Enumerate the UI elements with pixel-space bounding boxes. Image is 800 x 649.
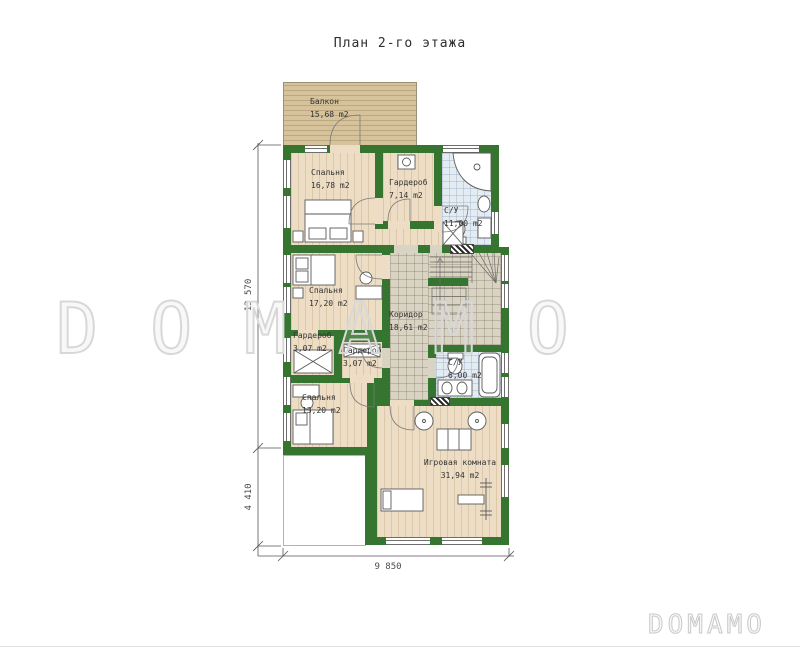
room-label-bedroom1: Спальня16,78 m2	[311, 166, 350, 192]
room-bath1-floor	[442, 153, 491, 245]
window	[283, 338, 291, 362]
bottom-divider	[0, 646, 800, 647]
room-label-wardrobe2: Гардероб3,07 m2	[293, 329, 332, 355]
room-label-corridor: Коридор18,61 m2	[389, 308, 428, 334]
window	[501, 255, 509, 281]
dimension-left-upper: 13 570	[244, 279, 254, 312]
dimension-left-lower: 4 410	[244, 483, 254, 510]
shaft-hatch-2	[430, 397, 450, 406]
page-title: План 2-го этажа	[0, 36, 800, 51]
door-opening-bedroom3	[350, 375, 374, 383]
room-label-bedroom2: Спальня17,20 m2	[309, 284, 348, 310]
opening-corridor-hall	[394, 245, 418, 253]
door-opening-bedroom1	[375, 198, 383, 224]
window	[501, 424, 509, 448]
room-label-wardrobe1: Гардероб7,14 m2	[389, 176, 428, 202]
room-label-balcony: Балкон15,68 m2	[310, 95, 349, 121]
door-opening-bath1	[434, 206, 442, 232]
stair-stub-wall	[428, 278, 468, 286]
floor-plan-canvas: План 2-го этажа	[0, 0, 800, 649]
window	[386, 537, 430, 545]
window	[283, 413, 291, 441]
window	[442, 537, 482, 545]
door-opening-bedroom2	[382, 255, 390, 279]
shaft-hatch-1	[450, 244, 474, 254]
door-opening-bath2	[428, 358, 436, 378]
window	[283, 196, 291, 228]
window	[491, 212, 499, 234]
window	[283, 255, 291, 283]
window	[501, 353, 509, 373]
window	[283, 287, 291, 313]
stair-hall-floor	[428, 253, 501, 345]
room-label-bedroom3: Спальня13,20 m2	[302, 391, 341, 417]
window	[443, 145, 479, 153]
room-label-wardrobe3: Гардероб3,07 m2	[343, 344, 382, 370]
window	[283, 160, 291, 188]
terrace-outline	[283, 455, 366, 546]
dimension-bottom: 9 850	[374, 562, 401, 572]
room-label-bath1: С/У11,00 m2	[444, 204, 483, 230]
room-label-bath2: С/У6,00 m2	[448, 356, 482, 382]
door-opening-wardrobe1	[388, 221, 410, 229]
room-balcony-floor	[283, 82, 417, 147]
watermark-corner: DOMAMO	[648, 610, 766, 640]
door-opening-balcony	[330, 145, 360, 153]
door-opening-playroom	[390, 400, 414, 406]
room-label-playroom: Игровая комната31,94 m2	[400, 456, 520, 482]
window	[501, 377, 509, 397]
window	[283, 377, 291, 405]
door-opening-wardrobe3	[382, 348, 390, 368]
window	[305, 145, 327, 153]
upper-hall-floor	[375, 229, 442, 245]
window	[501, 284, 509, 308]
opening-hall-stairs	[430, 245, 442, 253]
